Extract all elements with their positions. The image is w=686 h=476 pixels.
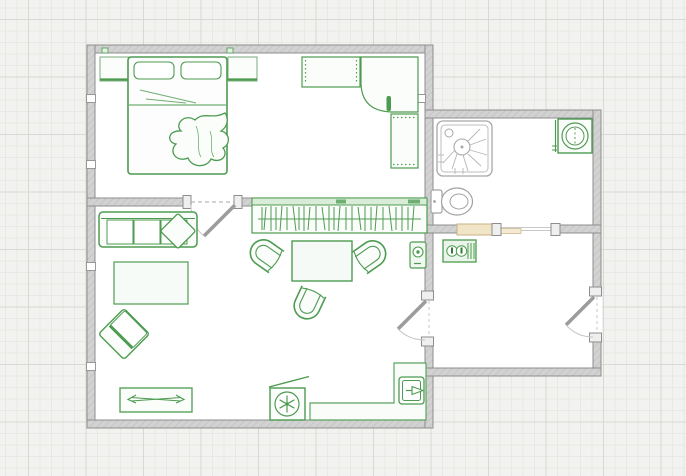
wall-bottom-left-section [87, 420, 433, 428]
desk-cabinet[interactable] [391, 114, 418, 168]
rug[interactable] [114, 262, 188, 304]
outlet-icon [87, 161, 96, 169]
sofa[interactable] [99, 212, 197, 249]
shower-cabin[interactable] [437, 121, 492, 176]
outlet-icon [87, 263, 96, 271]
switch-icon [227, 48, 233, 53]
coffee-table[interactable] [292, 241, 352, 281]
toilet[interactable] [431, 188, 473, 215]
corner-desk[interactable] [361, 57, 418, 112]
dresser[interactable] [302, 57, 360, 87]
pillow [134, 62, 174, 79]
outlet-icon [87, 363, 96, 371]
double-bed[interactable] [128, 57, 228, 174]
wall-bathroom-top [425, 110, 601, 118]
nightstand-left[interactable] [100, 57, 129, 81]
outlet-icon [87, 95, 96, 103]
wall-far-right-upper [593, 110, 601, 287]
floorplan-drawing: floor-plan [0, 0, 686, 476]
wall-top [87, 45, 433, 53]
tv-stand[interactable] [120, 388, 192, 412]
room-hallway: Hallway [443, 240, 476, 262]
wall-bedroom-divider-left [87, 198, 184, 206]
open-wardrobe-rack[interactable] [252, 198, 427, 233]
pillow [181, 62, 221, 79]
desk-item [387, 96, 392, 111]
switch-icon [102, 48, 108, 53]
nightstand-right[interactable] [228, 57, 257, 81]
wall-hall-bottom [425, 368, 601, 376]
electrical-panel[interactable] [443, 240, 476, 262]
washing-machine[interactable] [552, 119, 592, 153]
floorplan-canvas: floor-plan [0, 0, 686, 476]
sink [399, 377, 424, 404]
wall-intercom[interactable] [410, 242, 426, 268]
